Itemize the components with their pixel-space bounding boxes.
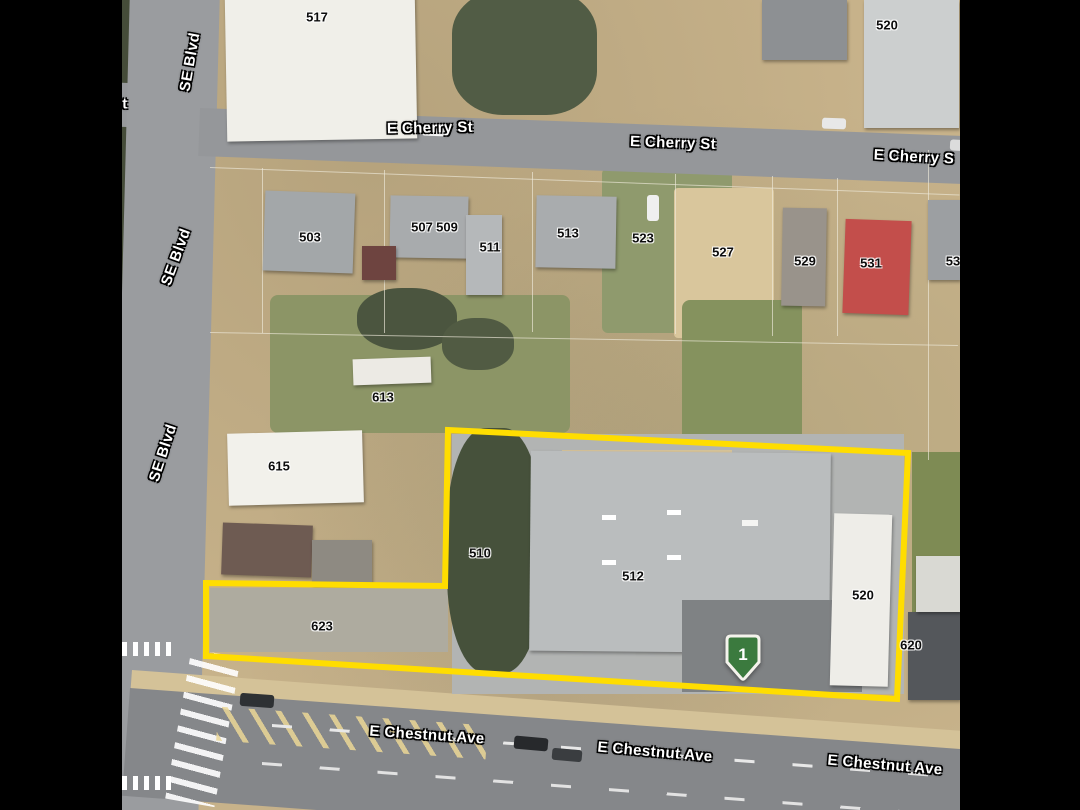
car [422, 124, 448, 137]
building-513 [535, 195, 616, 268]
tree-cluster [447, 428, 542, 673]
crosswalk-bar [122, 776, 177, 790]
car [240, 693, 275, 708]
building-503 [263, 190, 356, 273]
shed-dark-red [362, 246, 396, 280]
house-dark-roof [221, 522, 313, 577]
building-507-509 [389, 195, 468, 258]
selected-parcel-marker[interactable]: 1 [723, 633, 763, 683]
marker-number: 1 [738, 645, 747, 664]
map-canvas[interactable]: 1 tSE BlvdSE BlvdSE BlvdE Cherry StE Che… [122, 0, 960, 810]
parcel-lot-623 [210, 588, 448, 652]
trailer-white [353, 357, 432, 386]
building-roof [864, 0, 959, 128]
building-615 [227, 430, 364, 506]
car [950, 139, 960, 151]
lot-line [837, 178, 838, 336]
screenshot-stage: 1 tSE BlvdSE BlvdSE BlvdE Cherry StE Che… [0, 0, 1080, 810]
car [647, 195, 659, 221]
roof-vent [667, 555, 681, 560]
building-roof [762, 0, 847, 60]
house-roof [312, 540, 372, 585]
roof-vent [667, 510, 681, 515]
lot-line [532, 172, 533, 332]
building-531-red-roof [842, 219, 911, 315]
building-529 [781, 208, 827, 307]
building-517 [225, 0, 418, 142]
roof-vent [602, 560, 616, 565]
crosswalk-bar [122, 642, 177, 656]
lot-line [928, 150, 929, 460]
building-520-white [830, 513, 892, 686]
roof-vent [602, 515, 616, 520]
letterbox-right [960, 0, 1080, 810]
tree-cluster [442, 318, 514, 370]
letterbox-left [0, 0, 122, 810]
building-roof [916, 556, 960, 612]
car [552, 748, 583, 763]
roof-vent [742, 520, 758, 526]
lot-line [772, 176, 773, 336]
lot-line [675, 174, 676, 334]
car [822, 118, 846, 130]
building-roof [928, 200, 960, 280]
building-511 [466, 215, 502, 295]
building-620-dark [908, 612, 960, 700]
tree-cluster [452, 0, 597, 115]
